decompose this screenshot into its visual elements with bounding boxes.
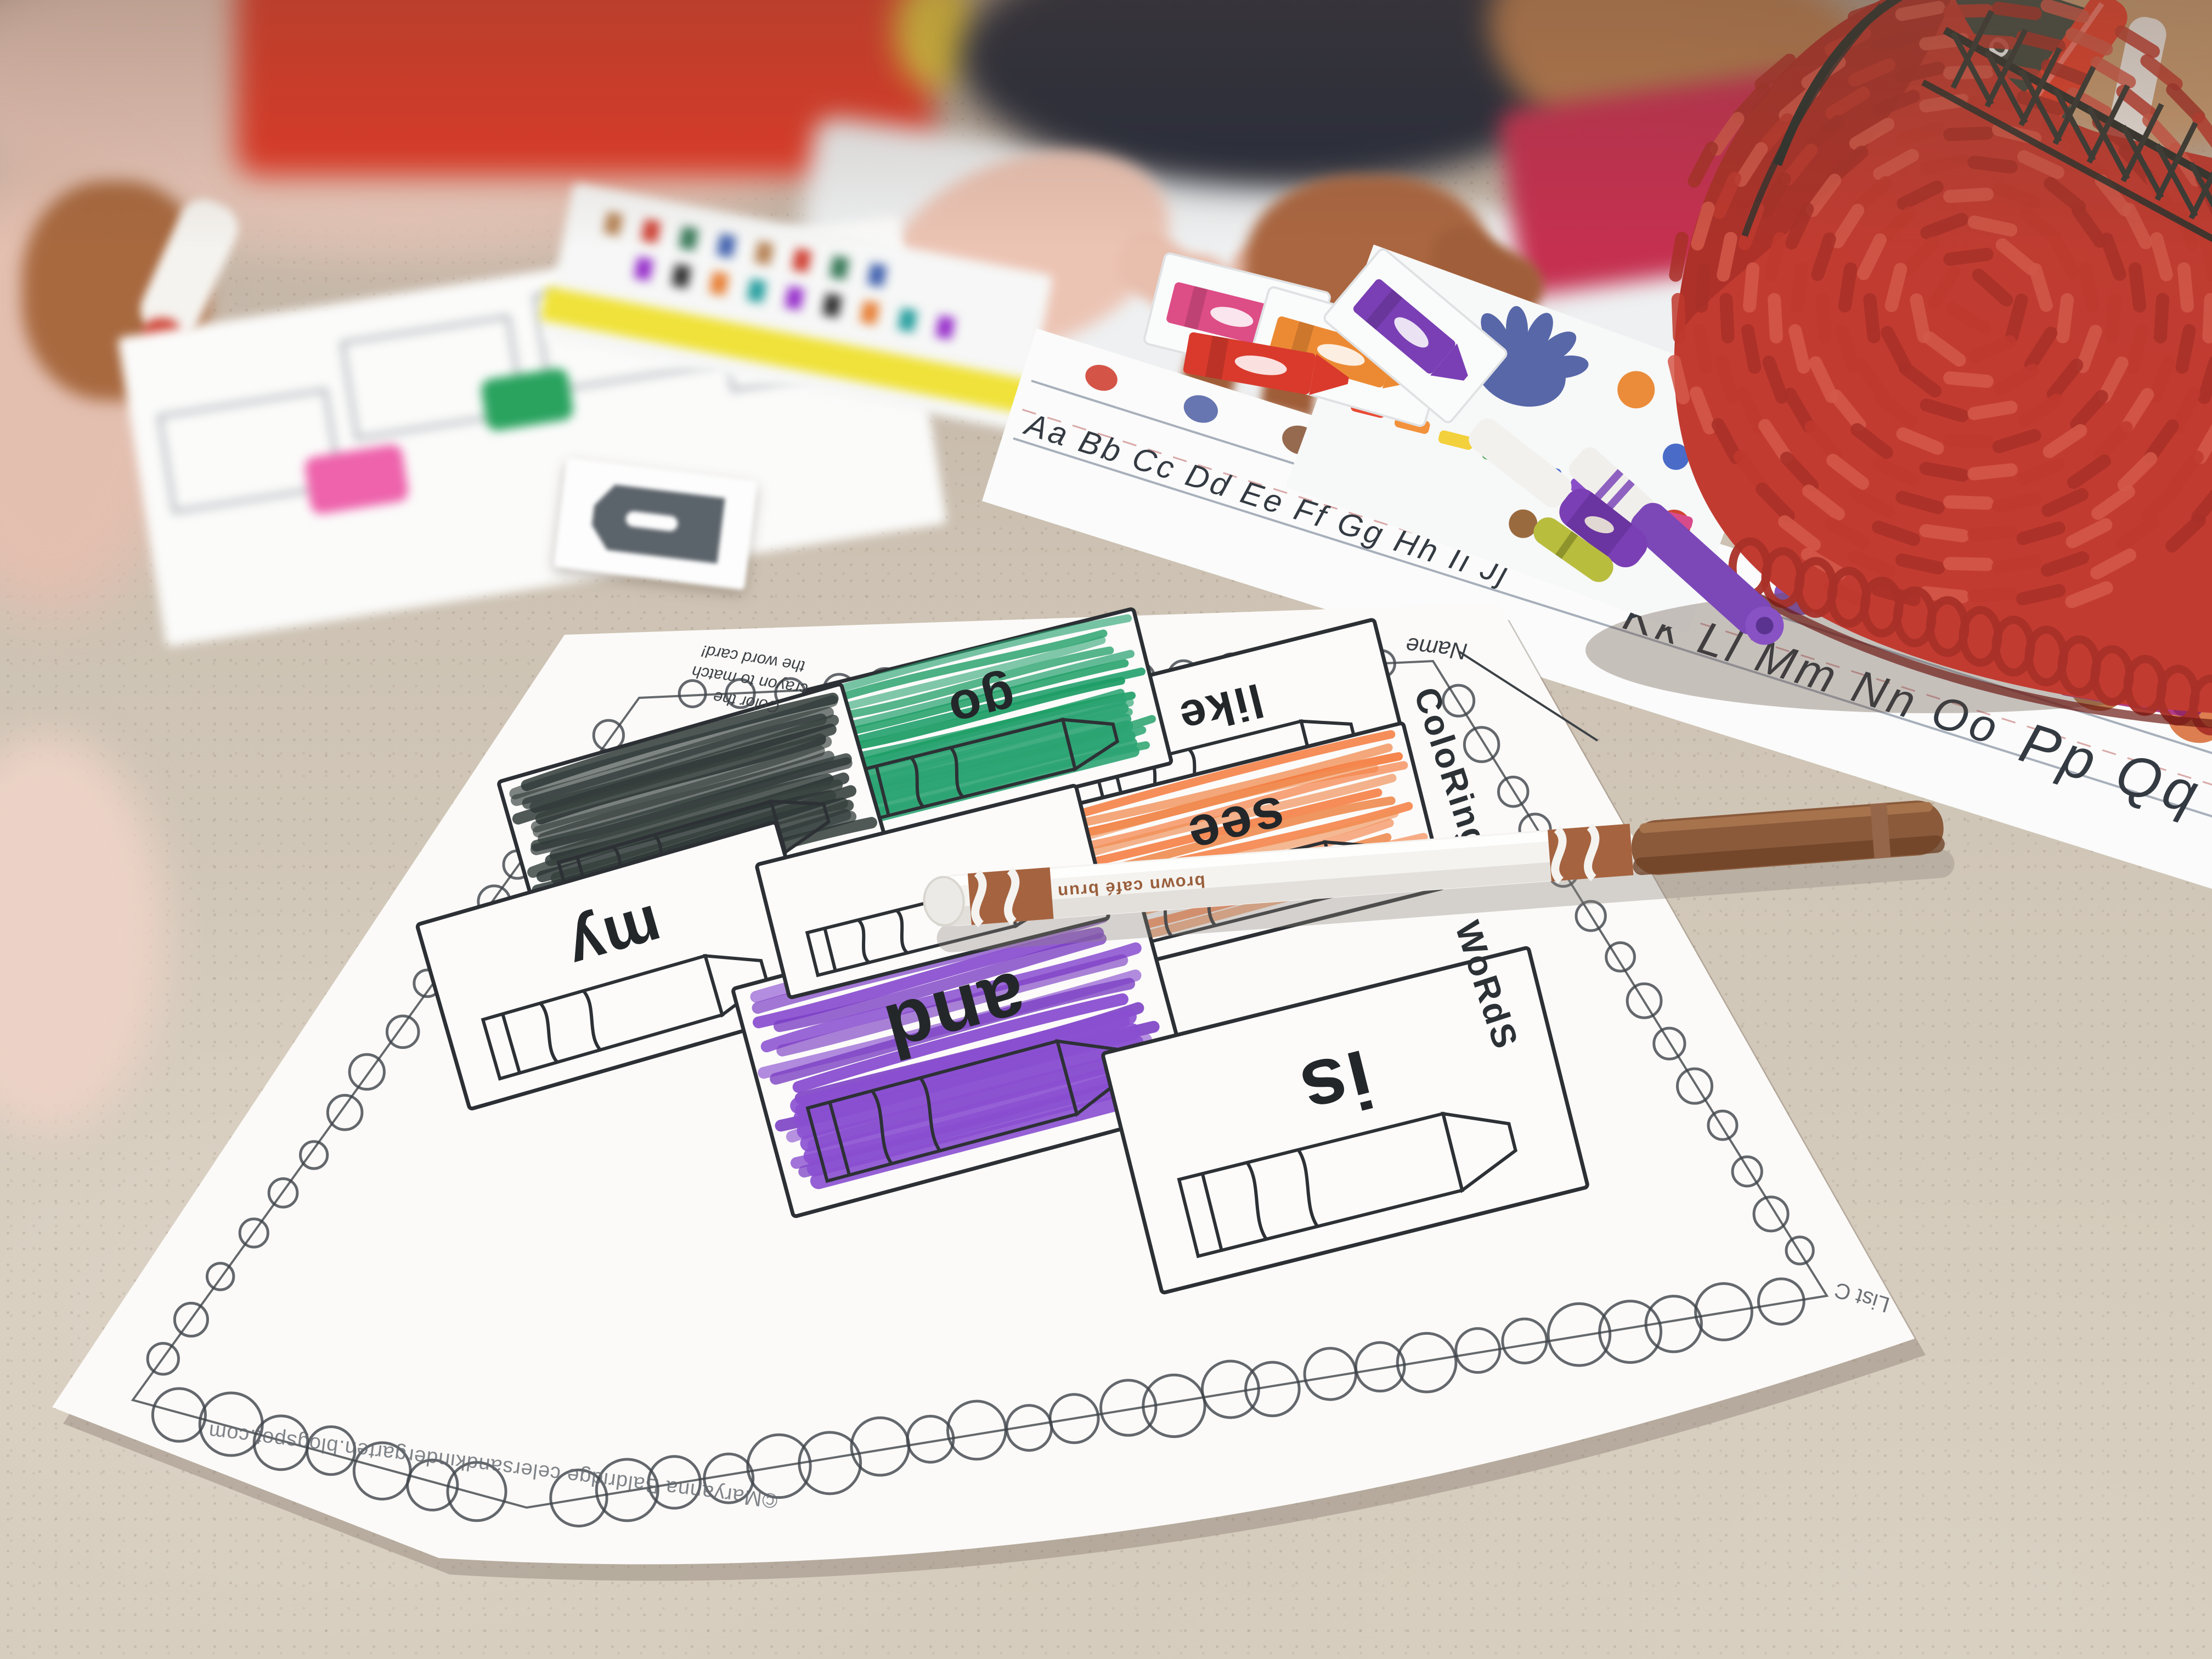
red-apple-basket: olo <box>1585 0 2212 731</box>
coloring-words-worksheet: likegoseemyandis Name ColoRing WoRdS Col… <box>52 603 1926 1581</box>
classroom-table-scene: Aa Bb Cc Dd Ee Ff Gg Hh Ii Jj Kk Ll Mm N… <box>0 0 2212 1659</box>
scene-svg: Aa Bb Cc Dd Ee Ff Gg Hh Ii Jj Kk Ll Mm N… <box>0 0 2212 1659</box>
